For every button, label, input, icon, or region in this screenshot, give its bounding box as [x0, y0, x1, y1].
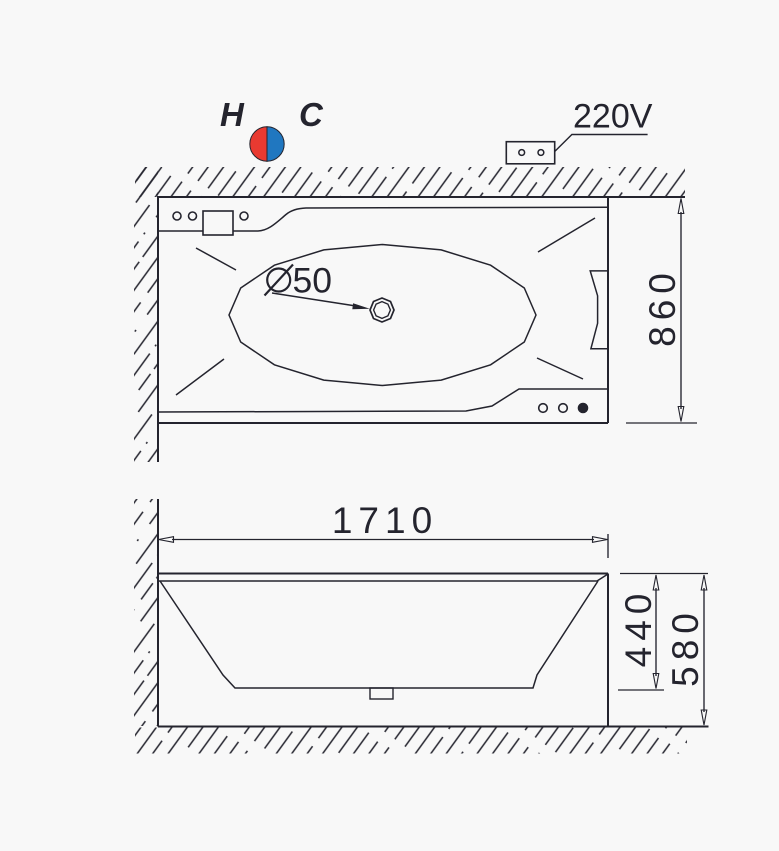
svg-text:220V: 220V [573, 97, 653, 135]
svg-text:1710: 1710 [332, 500, 438, 541]
svg-text:C: C [299, 96, 324, 133]
svg-text:H: H [220, 96, 245, 133]
svg-text:860: 860 [642, 267, 683, 347]
svg-text:580: 580 [665, 607, 706, 687]
svg-text:440: 440 [618, 588, 659, 668]
svg-text:50: 50 [293, 261, 333, 301]
